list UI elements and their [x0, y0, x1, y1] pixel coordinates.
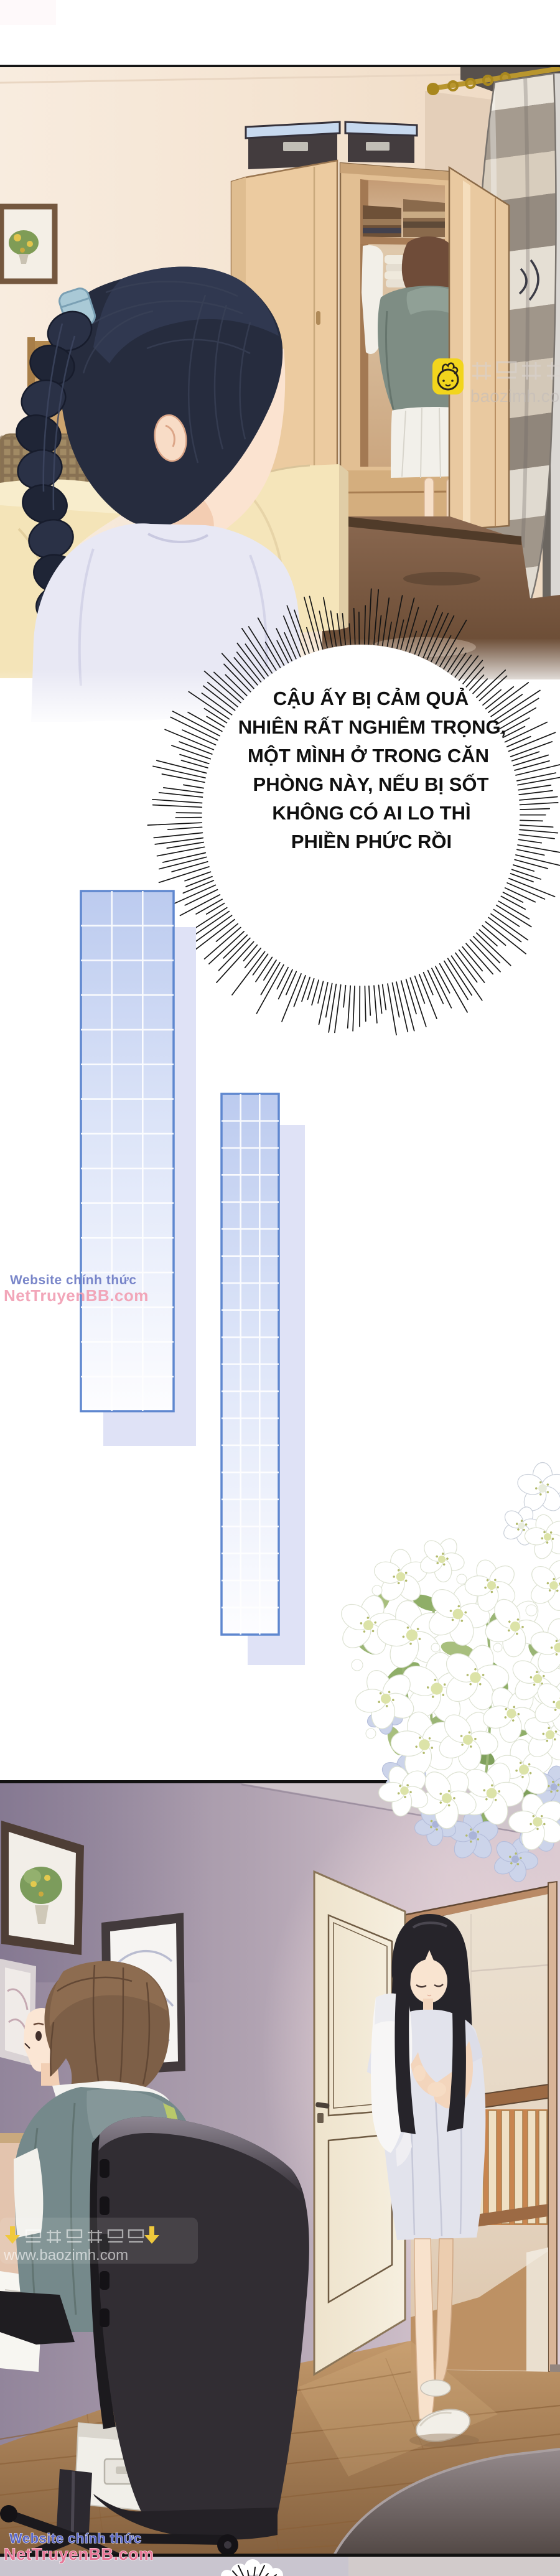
svg-text:KHÔNG CÓ AI LO THÌ: KHÔNG CÓ AI LO THÌ — [272, 801, 470, 824]
svg-text:CẬU ẤY BỊ CẢM QUẢ: CẬU ẤY BỊ CẢM QUẢ — [273, 687, 469, 709]
svg-text:Website chính thức: Website chính thức — [10, 1273, 137, 1287]
svg-text:NHIÊN RẤT NGHIÊM TRỌNG,: NHIÊN RẤT NGHIÊM TRỌNG, — [238, 716, 506, 738]
svg-text:Website chính thức: Website chính thức — [9, 2531, 142, 2546]
svg-text:PHIỀN PHỨC RỒI: PHIỀN PHỨC RỒI — [291, 830, 452, 852]
svg-text:baozimh.com: baozimh.com — [470, 386, 560, 406]
svg-text:PHÒNG NÀY, NẾU BỊ SỐT: PHÒNG NÀY, NẾU BỊ SỐT — [253, 773, 489, 795]
svg-text:NetTruyenBB.com: NetTruyenBB.com — [4, 1286, 149, 1305]
svg-text:www.baozimh.com: www.baozimh.com — [3, 2247, 128, 2264]
svg-text:NetTruyenBB.com: NetTruyenBB.com — [4, 2545, 154, 2564]
svg-text:MỘT MÌNH Ở TRONG CĂN: MỘT MÌNH Ở TRONG CĂN — [248, 744, 489, 767]
